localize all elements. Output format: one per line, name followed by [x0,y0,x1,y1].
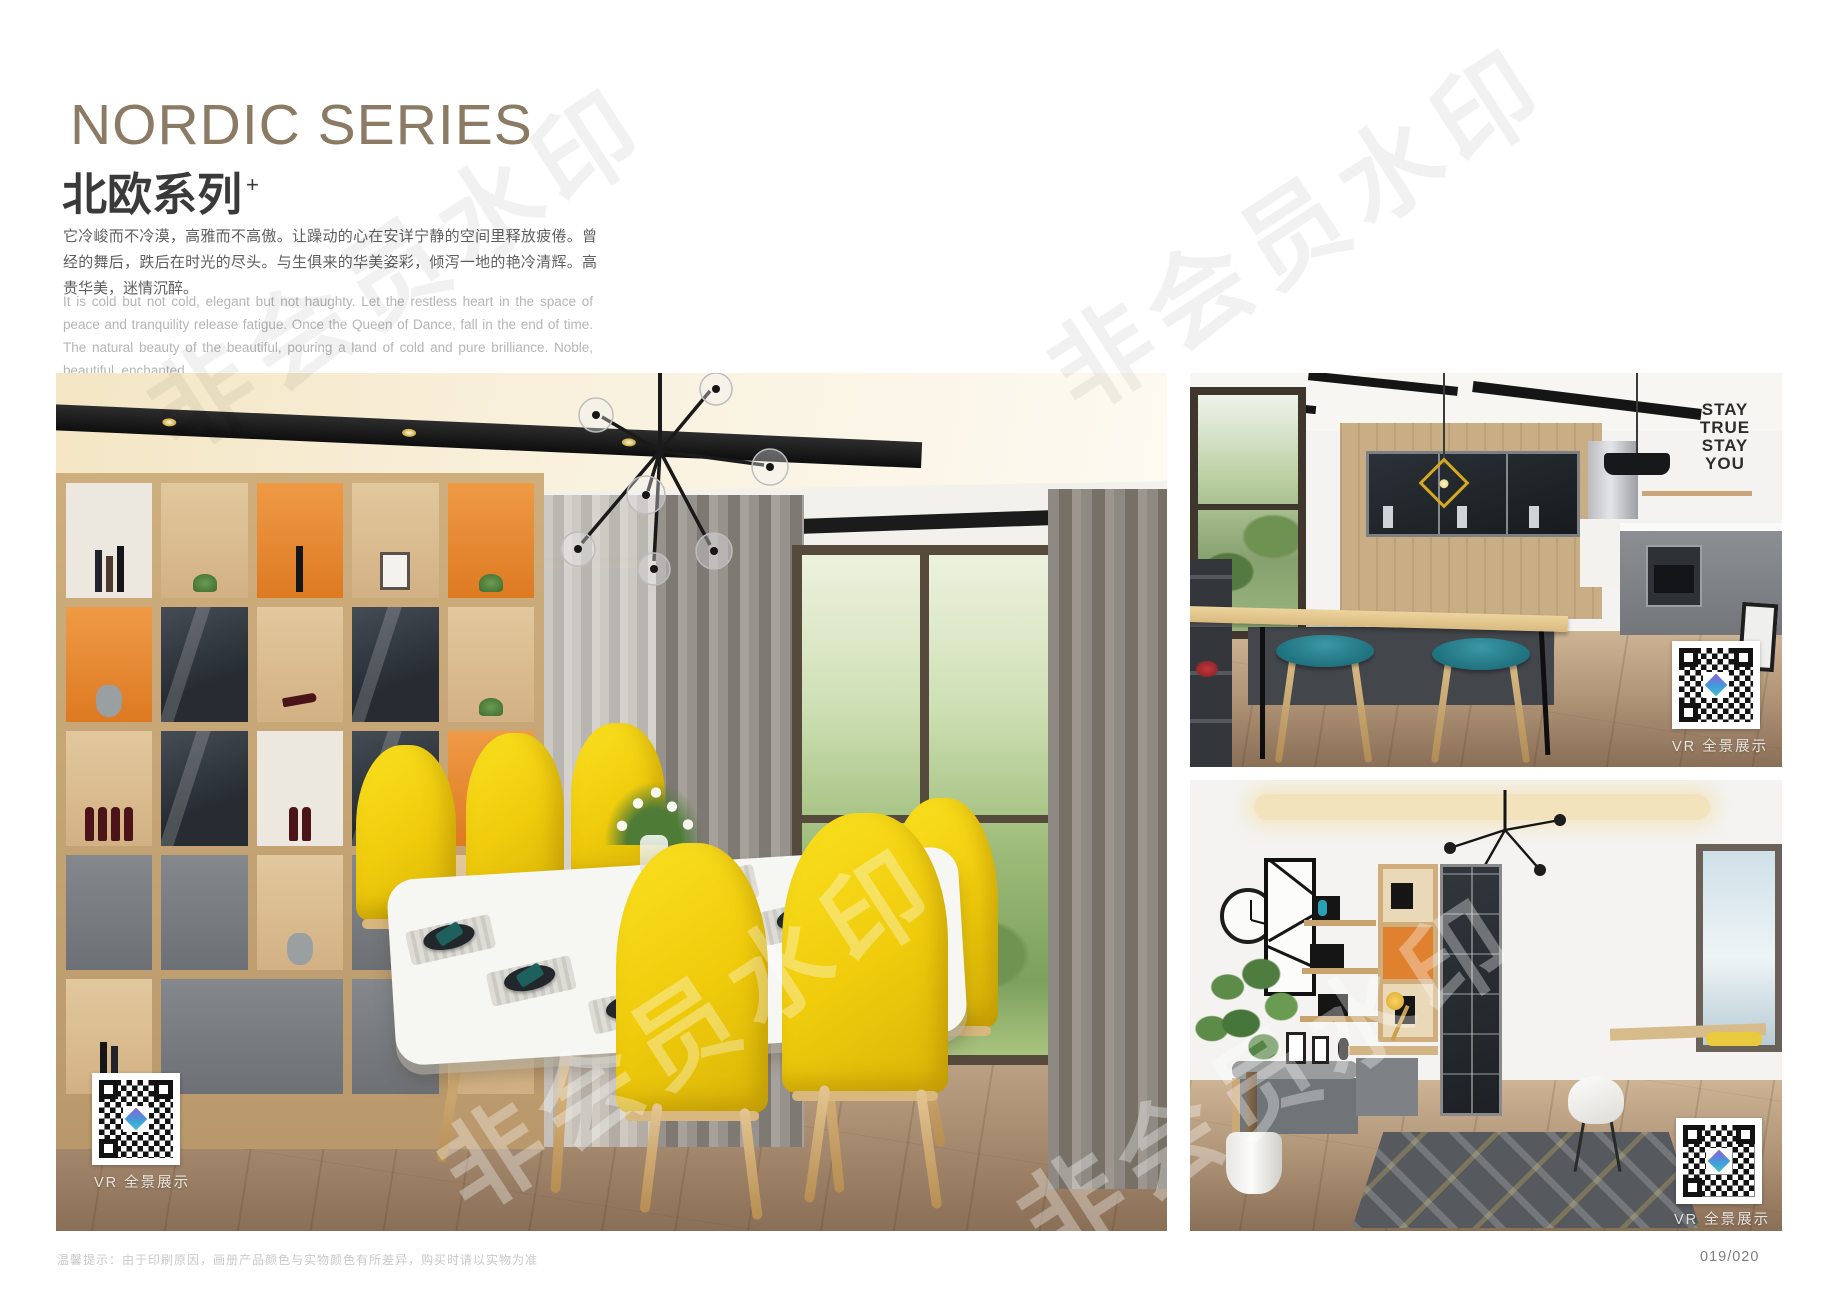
wine-shelf-cell [66,731,152,846]
photo-frame [380,552,410,590]
window-mullion [1198,504,1298,510]
page-number: 019/020 [1700,1249,1759,1265]
book [95,550,102,592]
qr-finder [154,1080,173,1099]
wine-bottle [124,807,133,841]
wood-bookcase [1378,864,1438,1042]
dining-chair [782,813,948,1093]
vr-panorama-label: VR 全景展示 [1672,735,1768,756]
cabinet-item [1457,506,1467,528]
page-title: NORDIC SERIES [70,92,533,158]
black-books [1391,883,1413,909]
plant-trunk [1246,1072,1257,1138]
cube-logo-icon [1706,1148,1732,1174]
wine-bottle [282,693,317,708]
page-title-chinese: 北欧系列+ [62,158,259,223]
plant-decor [479,698,503,716]
white-desk-chair [1568,1076,1624,1124]
decor-jar [96,685,122,717]
decor-item [296,546,303,592]
qr-finder [1683,1125,1702,1144]
catalog-page: NORDIC SERIES 北欧系列+ 它冷峻而不冷漠，高雅而不高傲。让躁动的心… [0,0,1836,1307]
teal-vase [1318,900,1327,916]
qr-finder [1679,703,1698,722]
shelf-cell [66,483,152,598]
teal-bar-stool [1432,638,1530,670]
clock-hand [1250,900,1252,920]
qr-finder [99,1080,118,1099]
vr-qr-code [1676,1118,1762,1204]
glass-display-cabinet [352,607,438,722]
description-english: It is cold but not cold, elegant but not… [63,290,593,382]
sputnik-chandelier [484,373,844,653]
vr-qr-code [92,1073,180,1165]
island-leg [1260,627,1265,759]
vr-panorama-label: VR 全景展示 [1674,1208,1770,1229]
teal-bar-stool [1276,635,1374,667]
area-rug [1352,1132,1700,1228]
yellow-cushion [1706,1032,1762,1046]
cabinet-door [161,979,343,1094]
qr-finder [1734,648,1753,667]
cube-logo-icon [1703,672,1729,698]
wine-bottle [289,807,298,841]
shelf-cell [257,731,343,846]
window-bench-base [1240,1078,1358,1134]
desk-lamp [1386,992,1404,1010]
pendant-wire [1443,373,1445,465]
cabinet-item [1529,506,1539,528]
plant-decor [193,574,217,592]
black-pendant-lamp [1604,453,1670,475]
cabinet-door [66,855,152,970]
white-plant-pot [1226,1132,1282,1194]
red-flowers [1196,661,1218,677]
wall-shelf [1642,491,1752,496]
shelf-cell [66,607,152,722]
place-setting [486,955,577,1007]
shelf-cell [257,483,343,598]
wall-art-line: STAY [1702,401,1749,419]
sky-window [1696,844,1782,1052]
qr-pattern [99,1080,173,1158]
black-books [1310,944,1344,968]
vr-qr-code [1672,641,1760,729]
wall-shelf [1302,968,1378,974]
glass-display-cabinet [161,607,247,722]
wall-art-line: YOU [1705,455,1745,473]
qr-finder [1736,1125,1755,1144]
wall-art-line: TRUE [1700,419,1750,437]
qr-finder [1683,1178,1702,1197]
cube-logo-icon [123,1106,149,1132]
wine-bottle [98,807,107,841]
cabinet-item [1383,506,1393,528]
gray-curtain [1048,489,1167,1189]
wine-bottle [111,807,120,841]
bookcase-cell-orange [1383,927,1433,980]
desk-panel [1356,1058,1418,1116]
book [117,546,124,592]
qr-pattern [1679,648,1753,722]
bookcase-cell [1383,869,1433,922]
spotlight [402,429,416,438]
potted-plant-canopy [1194,948,1306,1078]
wine-bottle [85,807,94,841]
glass-display-cabinet [161,731,247,846]
dining-room-photo: VR 全景展示 [56,373,1167,1231]
qr-pattern [1683,1125,1755,1197]
pendant-wire [1636,373,1638,453]
shelf-cell [161,483,247,598]
title-superscript: + [246,172,259,197]
qr-finder [99,1139,118,1158]
cabinet-door [161,855,247,970]
qr-finder [1679,648,1698,667]
wine-bottle [302,807,311,841]
desk-top [1348,1046,1438,1055]
vr-panorama-label: VR 全景展示 [94,1171,190,1192]
print-disclaimer: 温馨提示：由于印刷原因，画册产品颜色与实物颜色有所差异，购买时请以实物为准 [57,1251,538,1268]
photo-frame [1312,1036,1329,1064]
spotlight [162,418,176,427]
shelf-cell [257,855,343,970]
art-line [1268,859,1316,904]
wall-art-line: STAY [1702,437,1749,455]
place-setting [405,914,496,966]
glass-upper-cabinet [1366,451,1580,537]
shelf-cell [257,607,343,722]
decor-jar [287,933,313,965]
black-books [1318,994,1348,1016]
study-room-photo: VR 全景展示 [1190,780,1782,1231]
kitchen-photo: STAY TRUE STAY YOU VR 全景展示 [1190,373,1782,767]
wall-shelf [1300,1016,1380,1022]
shelf-cell [352,483,438,598]
book [106,556,113,592]
glass-display-cabinet [1440,864,1502,1116]
cabinet-divider [1506,454,1508,534]
wall-shelf [1304,920,1376,926]
wall-art-text: STAY TRUE STAY YOU [1694,401,1756,472]
dining-chair [616,843,768,1113]
built-in-oven [1646,545,1702,607]
title-zh-text: 北欧系列 [62,169,242,220]
